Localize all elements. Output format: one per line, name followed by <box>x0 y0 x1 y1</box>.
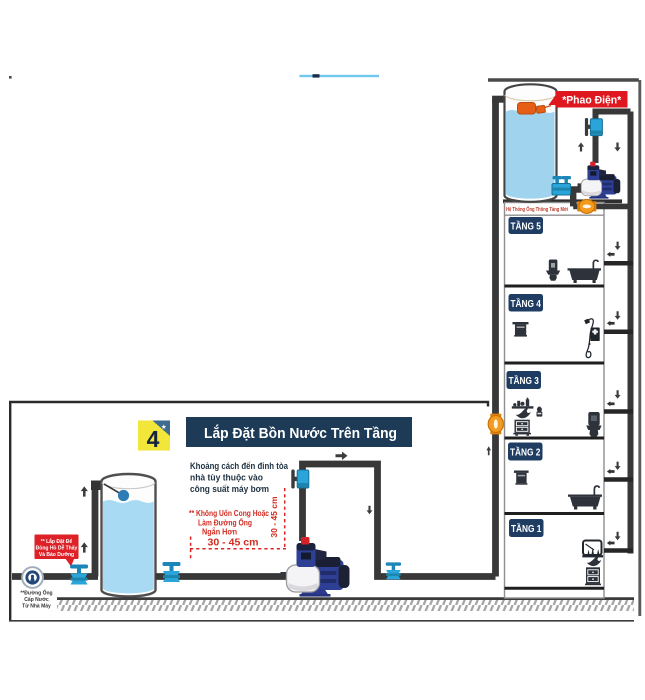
svg-text:*Phao Điện*: *Phao Điện* <box>562 94 622 106</box>
svg-text:TẦNG 5: TẦNG 5 <box>510 222 541 233</box>
svg-text:30 - 45 cm: 30 - 45 cm <box>208 537 259 549</box>
svg-text:Đồng Hồ Dễ Thấy: Đồng Hồ Dễ Thấy <box>36 545 78 552</box>
svg-text:Hệ Thống Ống Thông Tầng Mới: Hệ Thống Ống Thông Tầng Mới <box>506 206 568 213</box>
svg-text:**Đường Ống: **Đường Ống <box>20 590 52 597</box>
svg-text:4: 4 <box>147 426 160 452</box>
svg-text:** Không Uốn Cong Hoặc: ** Không Uốn Cong Hoặc <box>189 509 269 518</box>
svg-text:30 - 45 cm: 30 - 45 cm <box>269 496 279 538</box>
svg-text:công suất máy bơm: công suất máy bơm <box>190 484 269 495</box>
svg-text:TẦNG 3: TẦNG 3 <box>508 376 539 387</box>
svg-text:★: ★ <box>161 423 167 431</box>
svg-text:Làm Đường Ống: Làm Đường Ống <box>198 518 252 528</box>
svg-text:TẦNG 1: TẦNG 1 <box>511 524 542 535</box>
svg-text:nhà tùy thuộc vào: nhà tùy thuộc vào <box>190 473 263 484</box>
svg-text:Khoảng cách đến đỉnh tòa: Khoảng cách đến đỉnh tòa <box>190 461 289 472</box>
svg-text:TẦNG 4: TẦNG 4 <box>510 299 541 310</box>
svg-text:Ngắn Hơn: Ngắn Hơn <box>202 528 237 537</box>
svg-text:Và Bảo Dưỡng: Và Bảo Dưỡng <box>39 552 74 558</box>
svg-text:** Lắp Đặt Để: ** Lắp Đặt Để <box>41 538 73 545</box>
svg-text:Từ Nhà Máy: Từ Nhà Máy <box>22 604 51 610</box>
svg-text:TẦNG 2: TẦNG 2 <box>510 447 541 458</box>
svg-text:Lắp Đặt Bồn Nước Trên Tầng: Lắp Đặt Bồn Nước Trên Tầng <box>204 424 397 442</box>
svg-text:Cấp Nước: Cấp Nước <box>24 596 49 603</box>
